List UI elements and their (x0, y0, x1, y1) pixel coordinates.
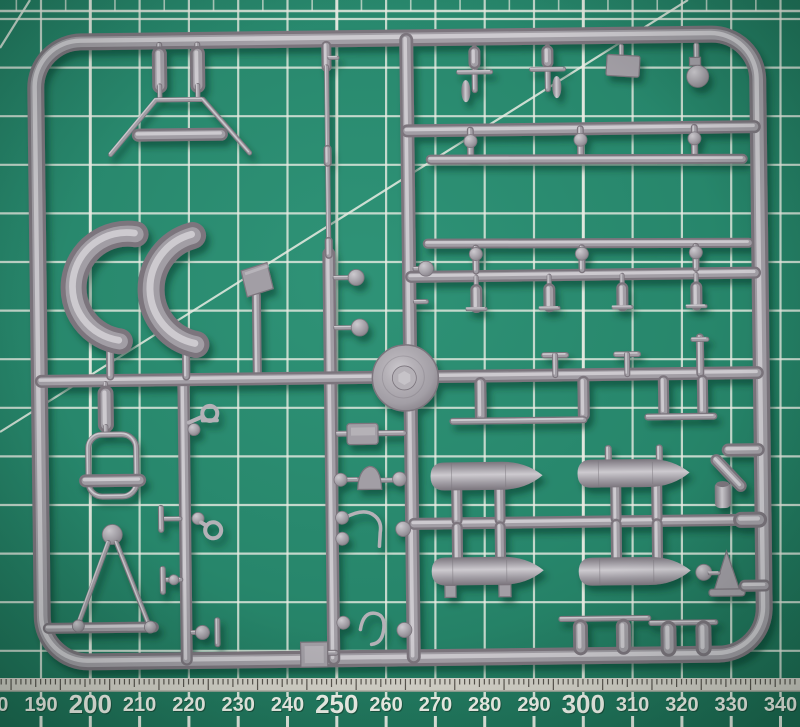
ruler-number: 220 (172, 694, 205, 716)
hanger-knob (469, 247, 482, 260)
tank-tab (499, 585, 511, 597)
ruler-number: 290 (517, 694, 550, 716)
valve-cap (351, 319, 368, 336)
hanger-knob (464, 135, 477, 148)
ruler-number: 190 (24, 694, 57, 716)
ruler-number: 320 (665, 694, 698, 716)
runner-knob (396, 521, 411, 536)
spreader-bar (137, 133, 220, 134)
ball-fitting-tab (689, 57, 700, 65)
bottom-bar-1 (560, 617, 647, 618)
ruler-number: 240 (271, 694, 304, 716)
runner-knob (335, 511, 348, 524)
tank-tab (445, 585, 456, 597)
runner-knob (397, 622, 412, 637)
ruler-number: 270 (419, 694, 452, 716)
ruler-number: 330 (715, 694, 748, 716)
hanger-knob (575, 247, 588, 260)
runner-knob (337, 616, 350, 629)
yoke-capsule (84, 479, 138, 480)
funnel-base (709, 589, 745, 596)
runner-knob (418, 261, 433, 276)
bracket-block (606, 54, 640, 77)
ruler-number: 340 (764, 694, 797, 716)
ruler-number: 260 (369, 694, 402, 716)
walkway-strip-2 (647, 415, 713, 416)
runner-knob (392, 472, 406, 486)
ruler-number: 280 (468, 694, 501, 716)
ruler-number: 180 (0, 694, 8, 716)
plate-inner (305, 646, 324, 663)
scene-svg: Grey injection-moulded model kit sprue p… (0, 0, 800, 727)
a-frame-ball (102, 524, 122, 544)
runner-knob (169, 575, 179, 585)
venturi-ball (687, 65, 709, 87)
hanger-knob (688, 132, 701, 145)
vertical-stub-headrest (255, 295, 256, 379)
ruler-number: 310 (616, 694, 649, 716)
a-frame-foot (144, 621, 156, 633)
block-facet (351, 427, 375, 435)
runner-knob (336, 532, 349, 545)
runner-knob (188, 423, 200, 435)
runner-knob (195, 625, 209, 639)
valve-cap (348, 269, 364, 285)
ruler-number: 210 (123, 694, 156, 716)
hanger-knob (574, 133, 587, 146)
foot-stub-runner (47, 626, 152, 627)
ruler-number: 230 (222, 694, 255, 716)
hanger-knob (689, 246, 702, 259)
a-frame-foot (72, 620, 84, 632)
runner-knob (334, 473, 347, 486)
photo-cutting-mat-scene: Grey injection-moulded model kit sprue p… (0, 0, 800, 727)
